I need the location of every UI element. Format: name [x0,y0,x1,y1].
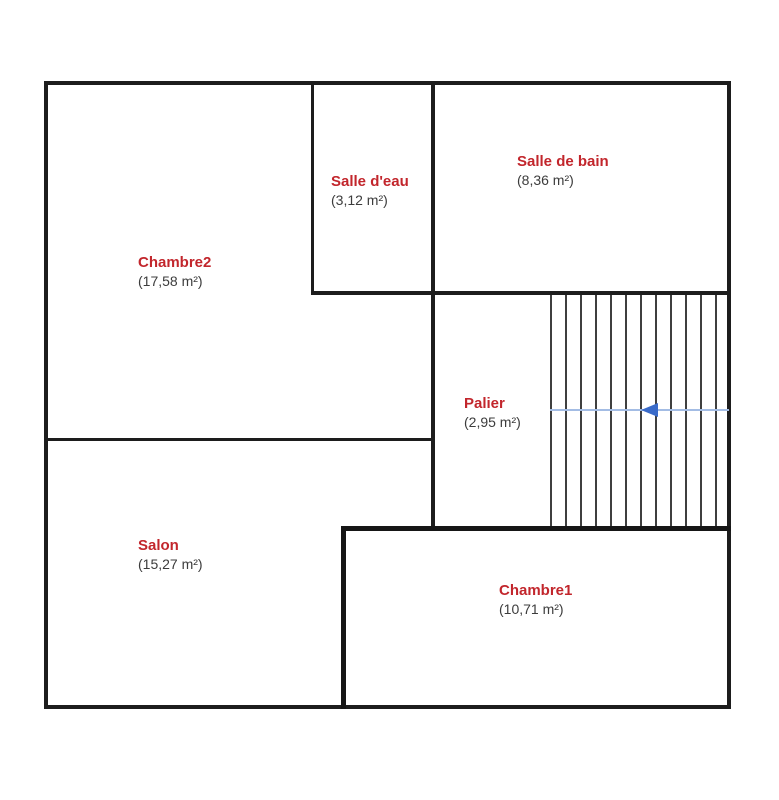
wall-central-vertical [431,83,435,531]
room-label-salle-deau: Salle d'eau (3,12 m²) [331,173,409,209]
floor-plan: Chambre2 (17,58 m²) Salle d'eau (3,12 m²… [0,0,779,800]
wall-chambre1-left [341,526,346,709]
room-label-salle-de-bain: Salle de bain (8,36 m²) [517,153,609,189]
wall-bathroom-bottom [311,291,731,295]
room-name: Chambre1 [499,582,572,600]
wall-exterior-left [44,81,48,709]
stair-direction-arrow-icon [641,403,658,417]
room-label-chambre1: Chambre1 (10,71 m²) [499,582,572,618]
room-label-salon: Salon (15,27 m²) [138,537,203,573]
stair-direction-line [550,409,729,411]
wall-chambre2-salon-divider [46,438,435,441]
room-area: (8,36 m²) [517,171,609,189]
wall-exterior-right [727,81,731,709]
room-area: (3,12 m²) [331,191,409,209]
room-name: Salon [138,537,203,555]
wall-salle-deau-left [311,83,314,295]
wall-chambre1-top [341,526,731,531]
room-name: Salle de bain [517,153,609,171]
room-name: Palier [464,395,521,413]
wall-exterior-top [44,81,731,85]
wall-exterior-bottom [44,705,731,709]
room-area: (2,95 m²) [464,413,521,431]
room-area: (10,71 m²) [499,600,572,618]
room-name: Salle d'eau [331,173,409,191]
room-area: (15,27 m²) [138,555,203,573]
room-label-palier: Palier (2,95 m²) [464,395,521,431]
room-label-chambre2: Chambre2 (17,58 m²) [138,254,211,290]
room-area: (17,58 m²) [138,272,211,290]
room-name: Chambre2 [138,254,211,272]
